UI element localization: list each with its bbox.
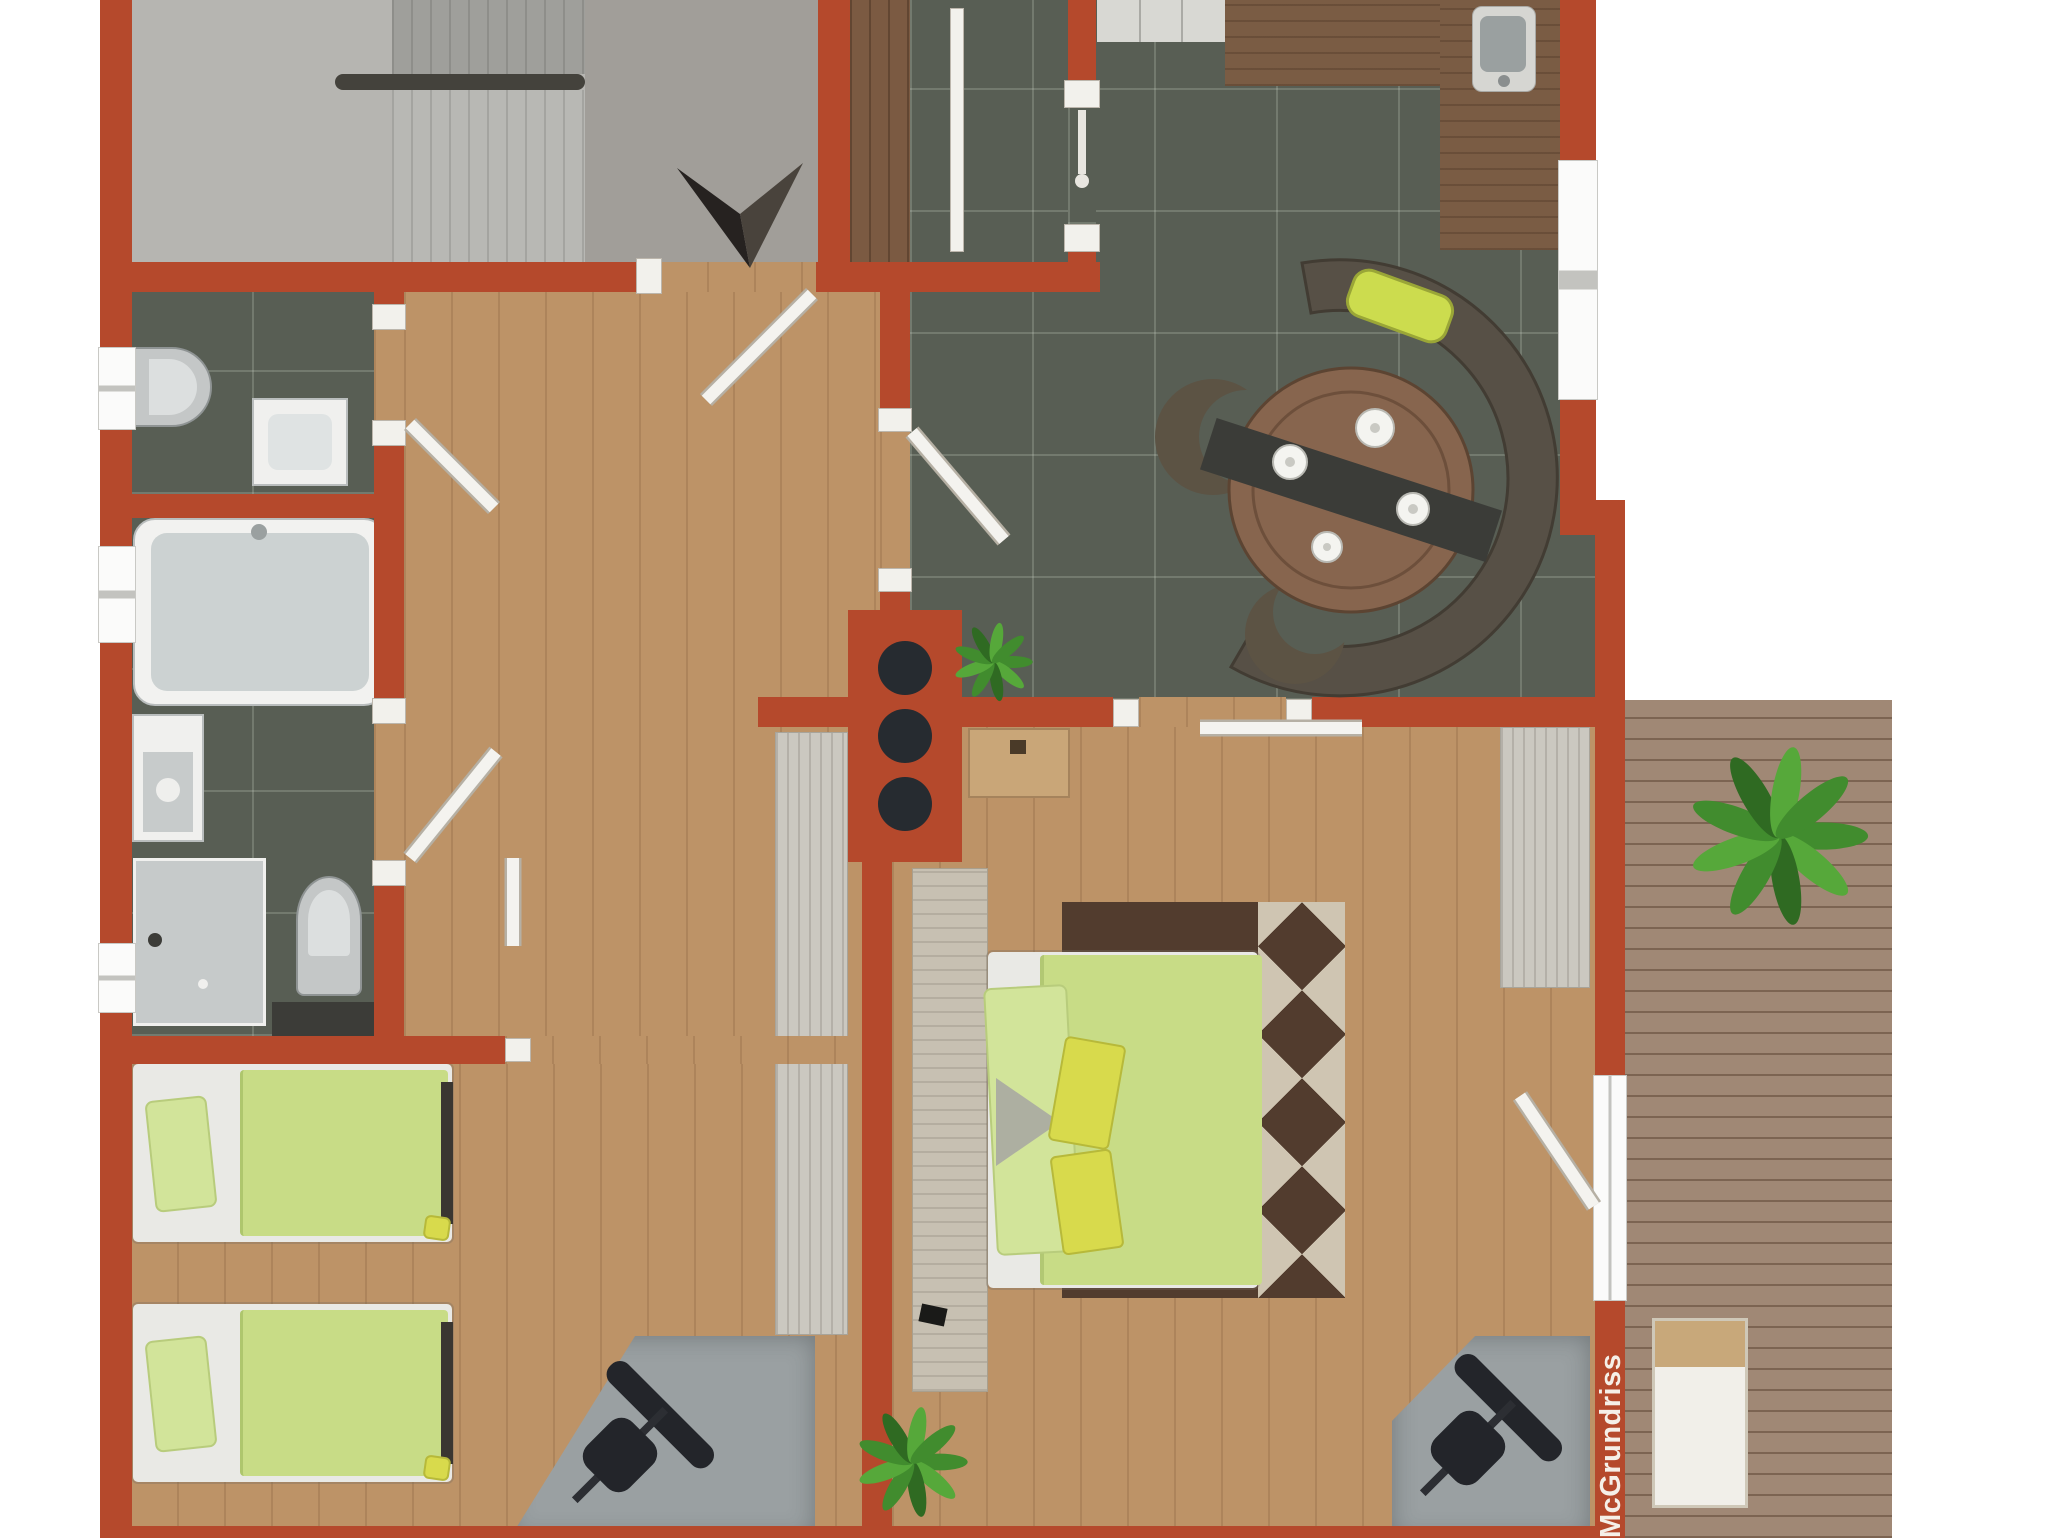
door-bath-leaf bbox=[410, 752, 496, 858]
north-arrow-icon bbox=[677, 163, 803, 268]
door-wc-leaf bbox=[410, 424, 494, 508]
door-terrace-leaf bbox=[1520, 1096, 1594, 1206]
door-entrance-leaf bbox=[706, 294, 812, 400]
plant-bedroom bbox=[857, 1406, 968, 1519]
door-kitchen-leaf bbox=[912, 432, 1004, 540]
dining-set bbox=[1155, 260, 1557, 696]
door-pantry-knob bbox=[1075, 174, 1089, 188]
plant-kitchen bbox=[954, 622, 1033, 702]
plant-terrace bbox=[1689, 745, 1868, 927]
plan-overlay bbox=[0, 0, 2048, 1538]
watermark: McGrundriss bbox=[1596, 1246, 1626, 1538]
floor-plan: McGrundriss bbox=[0, 0, 2048, 1538]
